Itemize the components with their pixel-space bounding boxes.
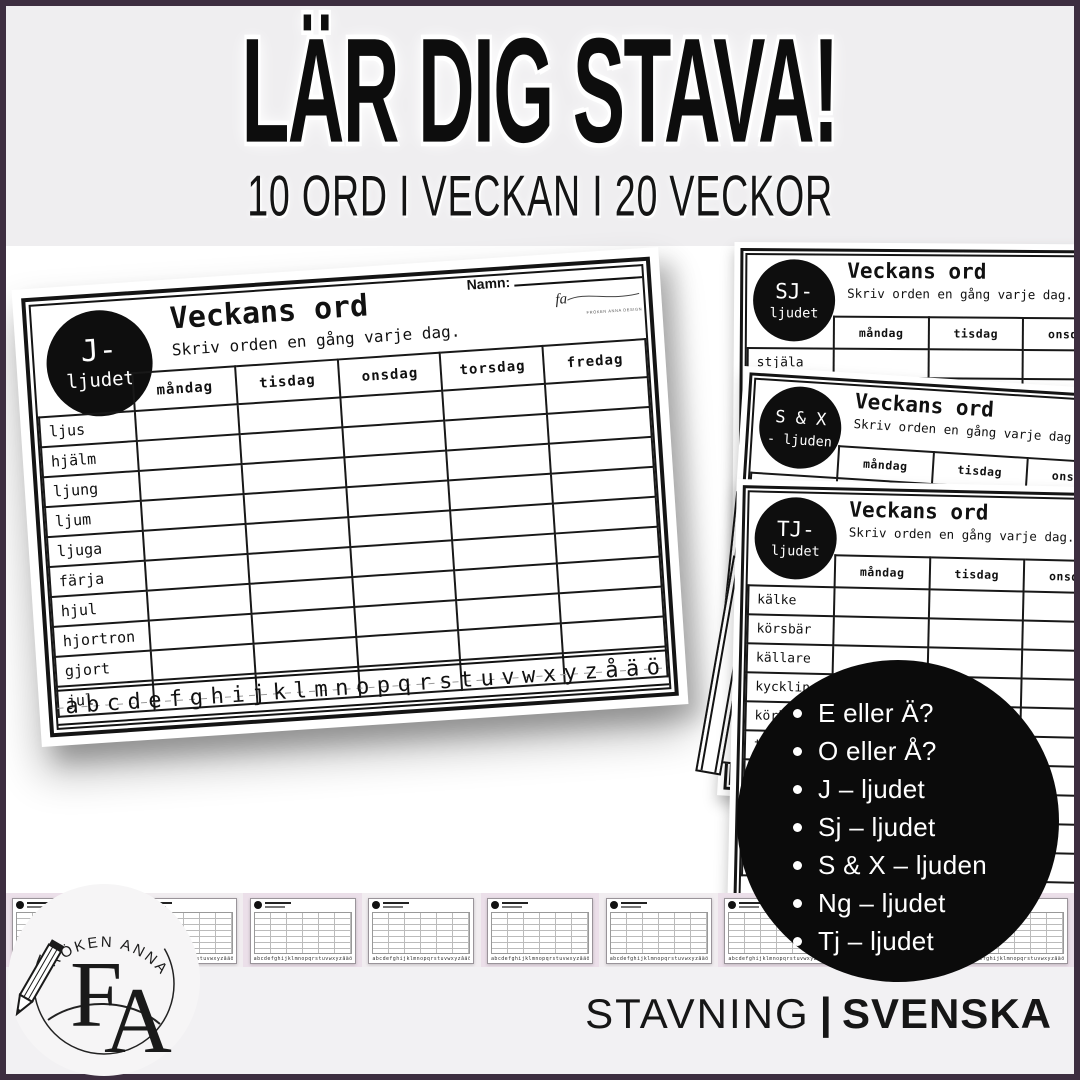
word-cell: körsbär (747, 614, 834, 645)
table-corner (748, 316, 834, 349)
practice-cell (1022, 621, 1080, 652)
mini-badge-icon (372, 901, 380, 909)
alphabet-letter: k (272, 678, 287, 709)
footer-separator: | (820, 989, 832, 1038)
alphabet-letter: u (480, 664, 495, 695)
bullet-dot-icon (793, 823, 802, 832)
mini-alphabet-line: abcdefghijklmnopqrstuvwxyzåäö (254, 956, 352, 962)
day-header: tisdag (929, 557, 1024, 591)
alphabet-letter: d (127, 687, 142, 718)
mini-grid (254, 912, 352, 954)
day-header: onsdag (1023, 318, 1080, 351)
mini-text-line (502, 906, 522, 908)
topic-label: E eller Ä? (818, 698, 934, 729)
name-label: Namn: (466, 274, 511, 293)
mini-text-line (265, 906, 285, 908)
footer-text: STAVNING|SVENSKA (585, 989, 1052, 1039)
practice-cell (928, 618, 1023, 649)
topic-label: S & X – ljuden (818, 850, 987, 881)
worksheet-thumbnail: abcdefghijklmnopqrstuvwxyzåäö (250, 898, 356, 964)
bullet-dot-icon (793, 747, 802, 756)
topic-item: Tj – ljudet (793, 922, 1059, 960)
worksheet-instruction: Skriv orden en gång varje dag. (847, 286, 1073, 303)
mini-text-line (383, 902, 409, 904)
day-header: tisdag (928, 317, 1023, 350)
worksheet-title: Veckans ord (849, 498, 1075, 527)
bullet-dot-icon (793, 861, 802, 870)
topic-item: Ng – ljudet (793, 884, 1059, 922)
alphabet-letter: l (293, 676, 308, 707)
mini-grid (610, 912, 708, 954)
alphabet-letter: i (230, 680, 245, 711)
alphabet-letter: x (542, 660, 557, 691)
alphabet-letter: o (355, 672, 370, 703)
alphabet-letter: å (604, 656, 619, 687)
table-corner (751, 441, 839, 478)
practice-cell (1023, 350, 1080, 380)
mini-text-line (621, 902, 647, 904)
topic-label: Ng – ljudet (818, 888, 946, 919)
mini-grid (372, 912, 470, 954)
day-header: måndag (835, 555, 930, 589)
froken-anna-logo-icon: FRÖKEN ANNA F A (8, 884, 200, 1076)
alphabet-letter: q (397, 669, 412, 700)
worksheet-thumbnail: abcdefghijklmnopqrstuvwxyzåäö (487, 898, 593, 964)
topic-item: E eller Ä? (793, 694, 1059, 732)
topic-label: Sj – ljudet (818, 812, 935, 843)
brand-logo: FRÖKEN ANNA F A (8, 884, 200, 1076)
svg-text:fa: fa (555, 291, 568, 308)
topic-item: S & X – ljuden (793, 846, 1059, 884)
worksheet-title: Veckans ord (847, 259, 1073, 285)
alphabet-letter: z (583, 657, 598, 688)
alphabet-letter: n (334, 674, 349, 705)
bullet-dot-icon (793, 937, 802, 946)
alphabet-letter: e (147, 686, 162, 717)
alphabet-letter: b (85, 690, 100, 721)
practice-cell (833, 616, 928, 647)
mini-text-line (621, 906, 641, 908)
worksheet-instruction: Skriv orden en gång varje dag. (849, 525, 1075, 545)
page-title: LÄR DIG STAVA! (6, 36, 1074, 174)
page-subtitle: 10 ORD I VECKAN I 20 VECKOR (6, 172, 1074, 232)
alphabet-letter: v (500, 663, 515, 694)
day-header: måndag (834, 317, 929, 350)
topics-list: E eller Ä?O eller Å?J – ljudetSj – ljude… (737, 660, 1059, 960)
alphabet-letter: ö (646, 653, 661, 684)
table-corner (37, 373, 135, 417)
mini-alphabet-line: abcdefghijklmnopqrstuvwxyzåäö (372, 956, 470, 962)
worksheet-thumbnail: abcdefghijklmnopqrstuvwxyzåäö (368, 898, 474, 964)
alphabet-letter: ä (625, 654, 640, 685)
alphabet-letter: a (64, 691, 79, 722)
practice-cell (928, 589, 1023, 620)
mini-badge-icon (254, 901, 262, 909)
mini-badge-icon (610, 901, 618, 909)
alphabet-letter: m (314, 675, 329, 706)
topic-label: Tj – ljudet (818, 926, 934, 957)
alphabet-letter: t (459, 665, 474, 696)
mini-text-line (502, 902, 528, 904)
topic-item: Sj – ljudet (793, 808, 1059, 846)
mini-text-line (383, 906, 403, 908)
worksheet-thumbnail: abcdefghijklmnopqrstuvwxyzåäö (606, 898, 712, 964)
practice-cell (928, 349, 1023, 379)
day-header-row: måndagtisdagonsdagtorsdagfredag (748, 316, 1080, 352)
topic-item: J – ljudet (793, 770, 1059, 808)
alphabet-letter: f (168, 685, 183, 716)
alphabet-letter: r (417, 668, 432, 699)
word-cell: kälke (748, 585, 835, 616)
worksheet-card-j-ljudet: J- ljudet Veckans ord Skriv orden en gån… (12, 247, 689, 747)
alphabet-letter: j (251, 679, 266, 710)
footer-category: STAVNING (585, 990, 809, 1037)
mini-badge-icon (728, 901, 736, 909)
logo-monogram-a: A (104, 969, 172, 1073)
bullet-dot-icon (793, 785, 802, 794)
practice-cell (834, 587, 929, 618)
alphabet-letter: h (210, 682, 225, 713)
top-banner: LÄR DIG STAVA! 10 ORD I VECKAN I 20 VECK… (6, 6, 1074, 246)
mini-text-line (265, 902, 291, 904)
topic-label: J – ljudet (818, 774, 925, 805)
thumbnail-slot: abcdefghijklmnopqrstuvwxyzåäö (481, 893, 600, 967)
mini-badge-icon (491, 901, 499, 909)
alphabet-letter: p (376, 671, 391, 702)
topics-circle: E eller Ä?O eller Å?J – ljudetSj – ljude… (737, 660, 1059, 982)
topic-label: O eller Å? (818, 736, 937, 767)
alphabet-letter: c (106, 689, 121, 720)
thumbnail-slot: abcdefghijklmnopqrstuvwxyzåäö (362, 893, 481, 967)
bullet-dot-icon (793, 899, 802, 908)
mini-alphabet-line: abcdefghijklmnopqrstuvwxyzåäö (491, 956, 589, 962)
practice-cell (1023, 592, 1080, 623)
mini-grid (491, 912, 589, 954)
day-header: onsdag (1024, 560, 1080, 594)
thumbnail-slot: abcdefghijklmnopqrstuvwxyzåäö (243, 893, 362, 967)
bullet-dot-icon (793, 709, 802, 718)
footer-subject: SVENSKA (842, 990, 1052, 1037)
alphabet-letter: w (521, 661, 536, 692)
thumbnail-slot: abcdefghijklmnopqrstuvwxyzåäö (599, 893, 718, 967)
alphabet-letter: y (563, 658, 578, 689)
alphabet-letter: s (438, 667, 453, 698)
topic-item: O eller Å? (793, 732, 1059, 770)
mini-alphabet-line: abcdefghijklmnopqrstuvwxyzåäö (610, 956, 708, 962)
table-corner (749, 553, 836, 587)
alphabet-letter: g (189, 683, 204, 714)
